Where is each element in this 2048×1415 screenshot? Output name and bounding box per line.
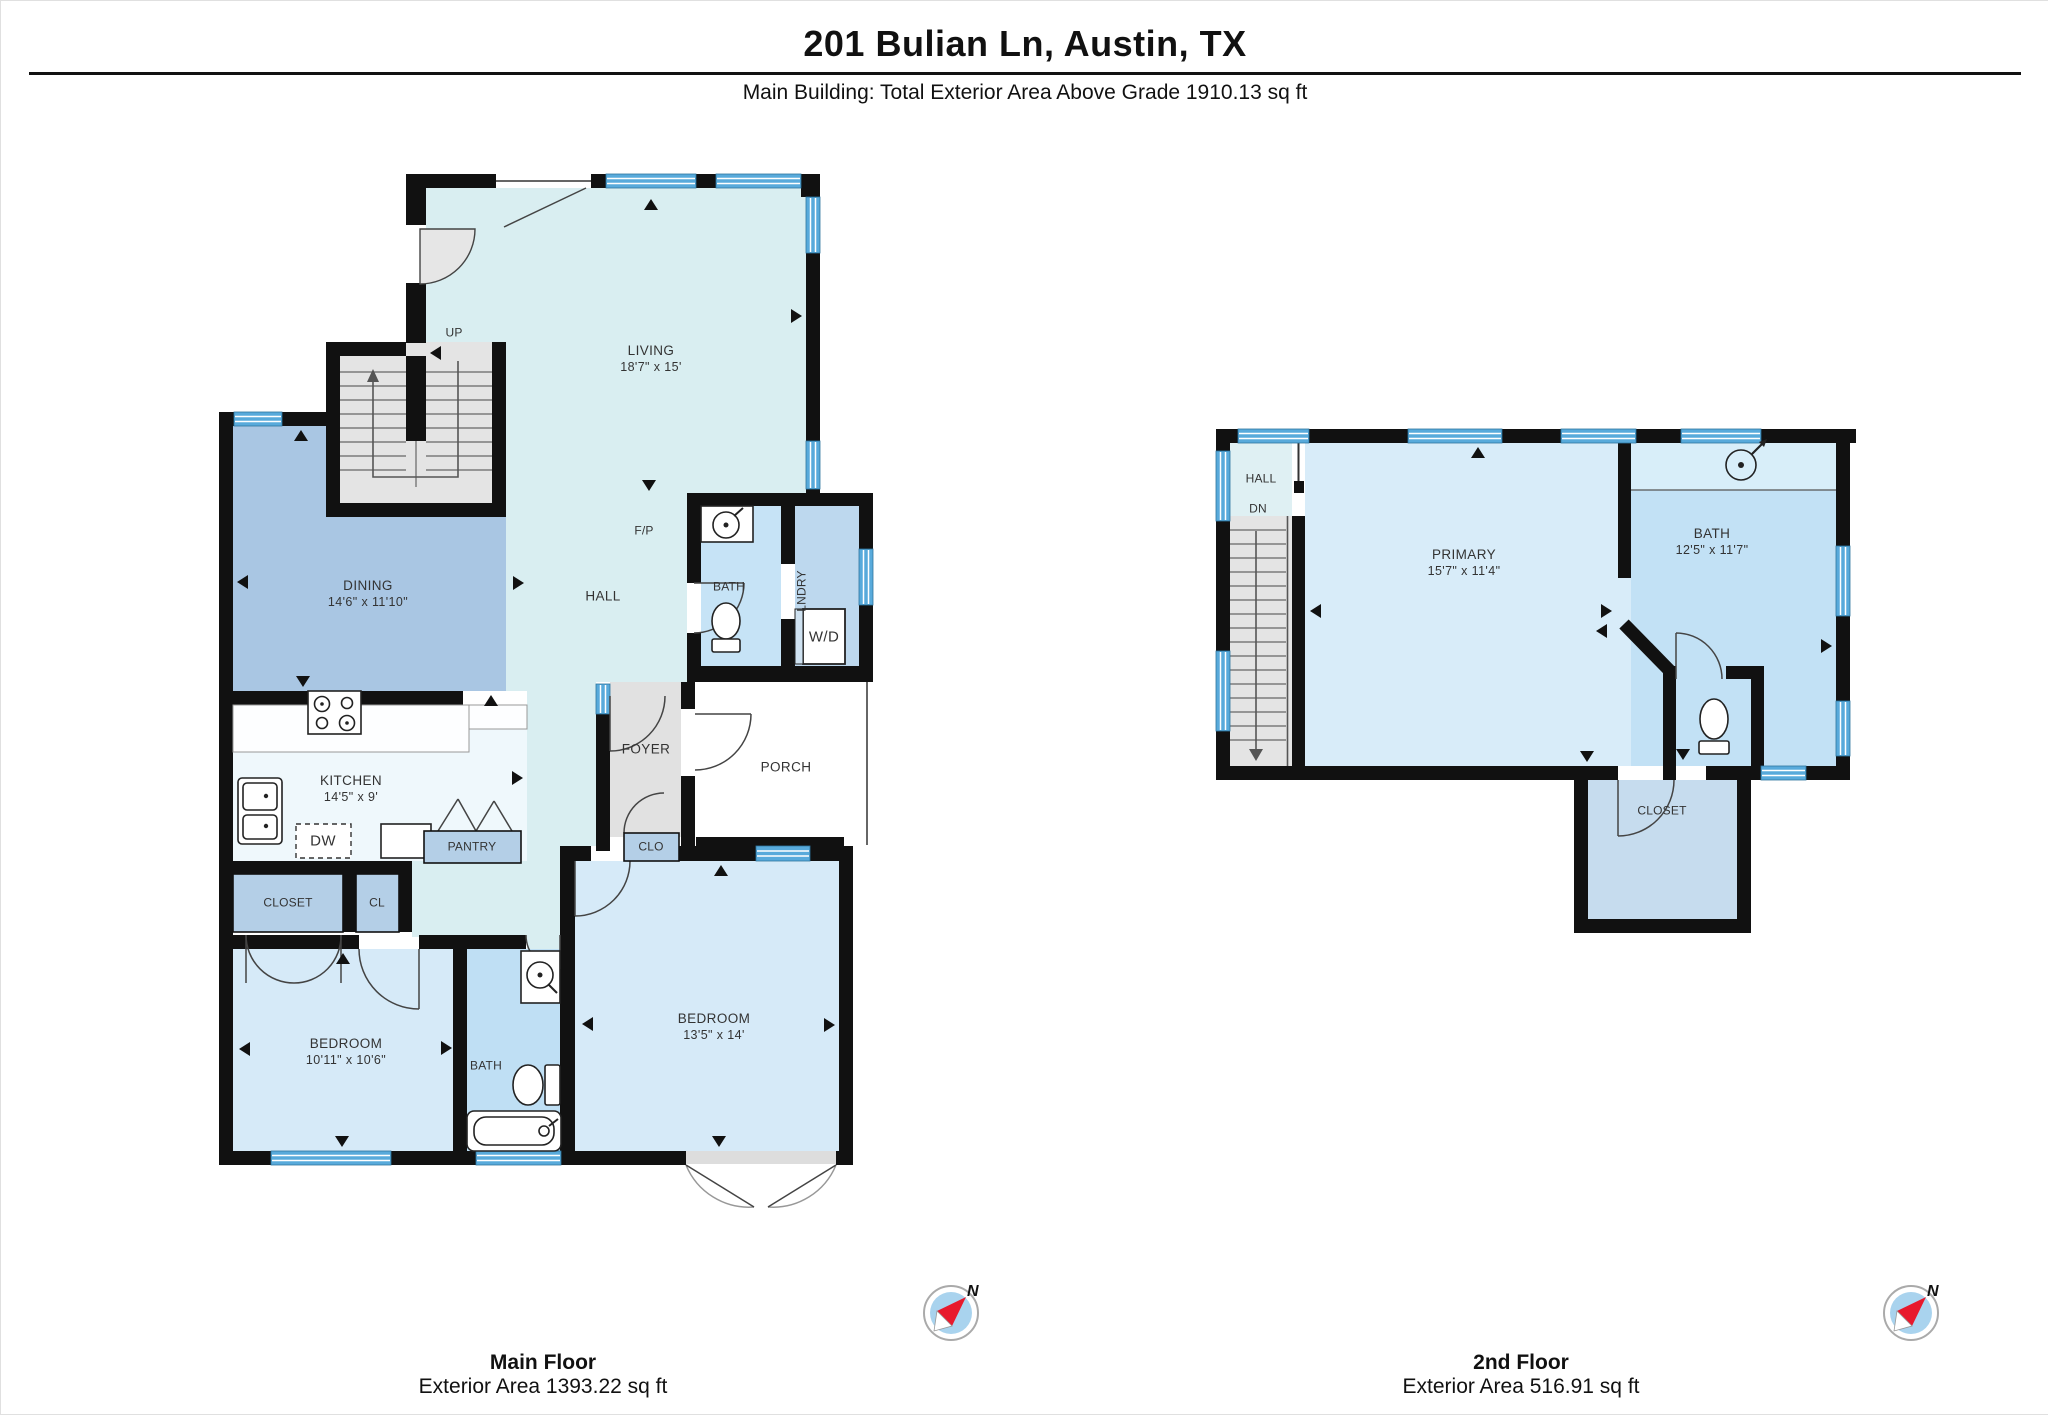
room-label-laundry: LNDRY — [794, 570, 811, 611]
room-label-hall: HALL — [585, 588, 620, 605]
toilet-icon — [1699, 699, 1729, 754]
room-label-clo: CLO — [638, 839, 663, 856]
room-label-living: LIVING18'7" x 15' — [620, 342, 682, 376]
toilet2-icon — [513, 1065, 560, 1105]
room-label-bath2: BATH — [470, 1058, 502, 1075]
room-label-closet: CLOSET — [263, 895, 312, 912]
page-subtitle: Main Building: Total Exterior Area Above… — [1, 81, 2048, 105]
bath-sink-icon — [701, 506, 753, 542]
washer-dryer-label: W/D — [809, 629, 839, 646]
stairs-down-label: DN — [1249, 501, 1267, 518]
bath2-sink-icon — [521, 951, 560, 1003]
toilet-icon — [712, 603, 740, 652]
title-divider — [29, 72, 2021, 75]
room-label-cl: CL — [369, 895, 385, 912]
second-floor-caption: 2nd Floor Exterior Area 516.91 sq ft — [1403, 1351, 1640, 1399]
main-floor-caption: Main Floor Exterior Area 1393.22 sq ft — [419, 1351, 668, 1399]
second-floor-drawing — [1206, 421, 1866, 951]
room-label-pantry: PANTRY — [448, 839, 497, 856]
kitchen-sink-icon — [238, 778, 282, 844]
room-label-bedroom2: BEDROOM13'5" x 14' — [678, 1010, 751, 1044]
compass-rose-second: N — [1881, 1281, 1951, 1345]
room-label-primary: PRIMARY15'7" x 11'4" — [1428, 546, 1501, 580]
compass-icon — [921, 1281, 991, 1345]
room-label-bath: BATH — [713, 579, 745, 596]
room-label-bath: BATH12'5" x 11'7" — [1676, 525, 1749, 559]
stairs-up-label: UP — [445, 325, 462, 342]
room-label-closet: CLOSET — [1637, 803, 1686, 820]
room-label-porch: PORCH — [761, 759, 812, 776]
second-floor-plan: HALL DN PRIMARY15'7" x 11'4" BATH12'5" x… — [1206, 421, 1866, 951]
room-label-dining: DINING14'6" x 11'10" — [328, 577, 408, 611]
main-floor-plan: LIVING18'7" x 15' UP DINING14'6" x 11'10… — [206, 169, 896, 1229]
room-label-bedroom1: BEDROOM10'11" x 10'6" — [306, 1035, 386, 1069]
page-title: 201 Bulian Ln, Austin, TX — [1, 23, 2048, 65]
dishwasher-label: DW — [310, 833, 336, 850]
compass-icon — [1881, 1281, 1951, 1345]
stove-icon — [308, 691, 361, 734]
compass-rose-main: N — [921, 1281, 991, 1345]
floorplan-page: 201 Bulian Ln, Austin, TX Main Building:… — [0, 0, 2048, 1415]
main-floor-drawing — [206, 169, 896, 1229]
room-label-kitchen: KITCHEN14'5" x 9' — [320, 772, 382, 806]
room-label-foyer: FOYER — [622, 741, 671, 758]
compass-north-label: N — [1927, 1283, 1939, 1301]
bathtub-icon — [467, 1111, 561, 1151]
room-label-hall: HALL — [1246, 471, 1277, 488]
fireplace-label: F/P — [634, 523, 653, 540]
compass-north-label: N — [967, 1283, 979, 1301]
